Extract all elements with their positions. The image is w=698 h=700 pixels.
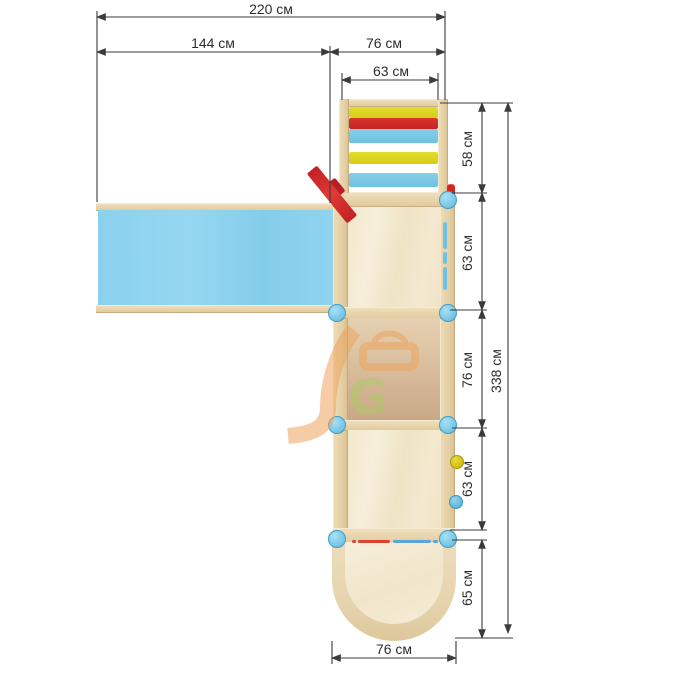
dimension-lines — [0, 0, 698, 700]
playground-top-view-drawing: G — [0, 0, 698, 700]
